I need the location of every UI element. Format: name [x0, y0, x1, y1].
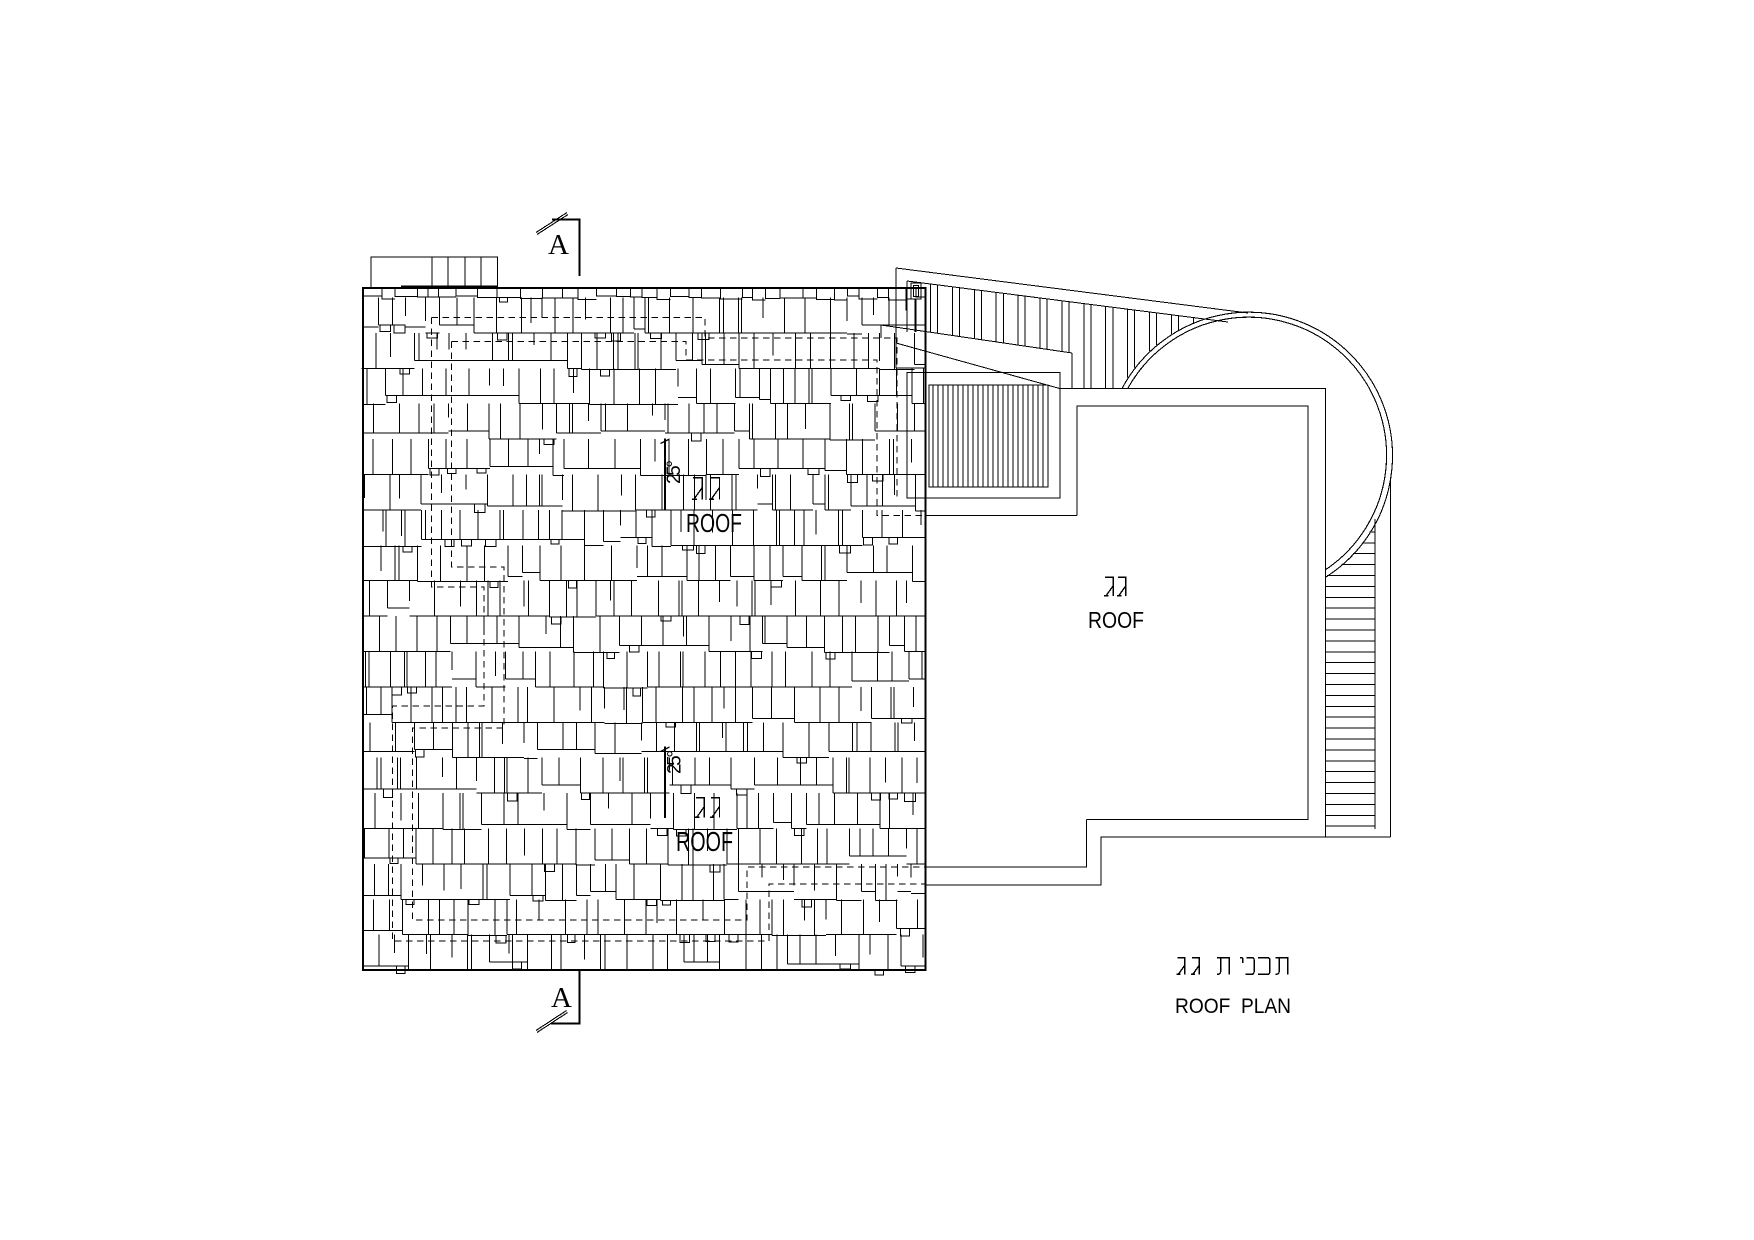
svg-text:A: A	[551, 982, 572, 1014]
svg-text:ROOF PLAN: ROOF PLAN	[1175, 995, 1291, 1018]
svg-text:ROOF: ROOF	[686, 508, 742, 538]
svg-text:25°: 25°	[665, 750, 686, 774]
svg-text:A: A	[548, 229, 569, 261]
svg-text:ROOF: ROOF	[676, 826, 733, 857]
svg-text:25°: 25°	[664, 460, 685, 484]
svg-text:ROOF: ROOF	[1088, 607, 1144, 633]
